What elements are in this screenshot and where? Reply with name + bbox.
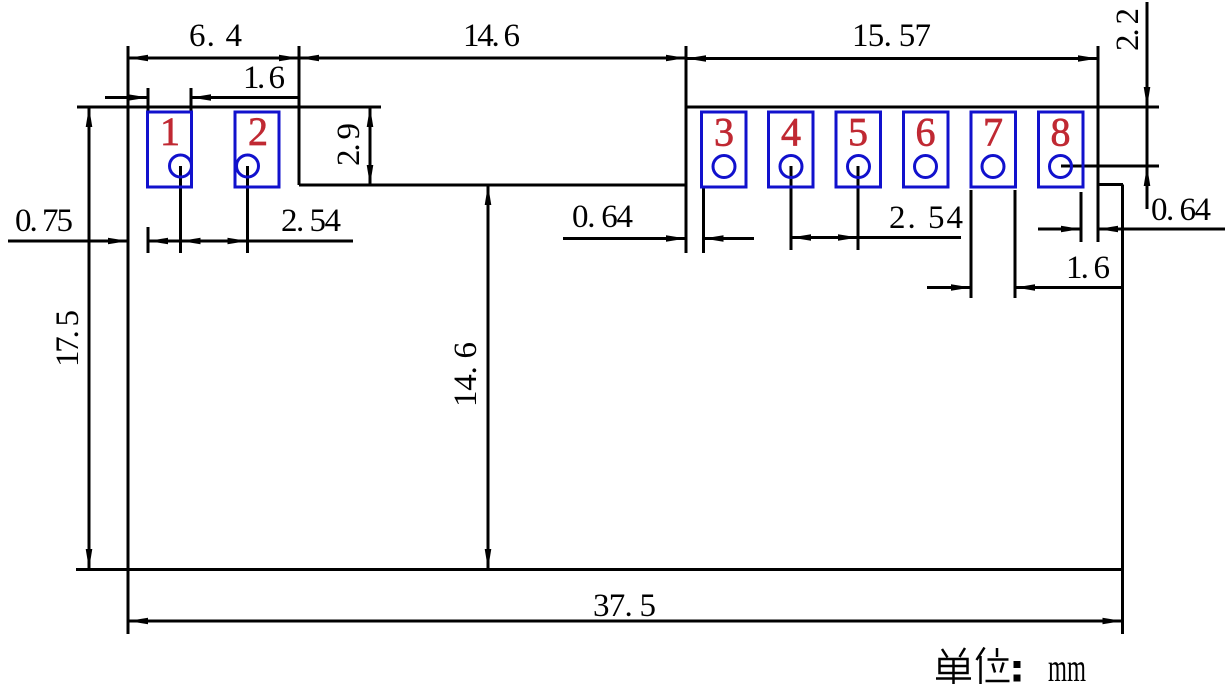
svg-text:2: 2 xyxy=(248,109,268,154)
svg-text:4: 4 xyxy=(781,110,801,155)
svg-text:2. 54: 2. 54 xyxy=(889,200,963,236)
svg-text:mm: mm xyxy=(1048,645,1086,690)
svg-text:1: 1 xyxy=(160,109,180,154)
svg-text:3: 3 xyxy=(714,110,734,155)
svg-text:0. 64: 0. 64 xyxy=(1151,192,1211,228)
svg-text:2. 2: 2. 2 xyxy=(1110,8,1146,51)
svg-text:7: 7 xyxy=(983,110,1003,155)
svg-text:6. 4: 6. 4 xyxy=(189,18,242,54)
svg-text:0. 75: 0. 75 xyxy=(15,203,73,239)
svg-text:5: 5 xyxy=(848,110,868,155)
svg-text:15. 57: 15. 57 xyxy=(852,18,931,54)
svg-text:14. 6: 14. 6 xyxy=(463,18,520,54)
svg-text:37. 5: 37. 5 xyxy=(593,588,656,624)
svg-text:14. 6: 14. 6 xyxy=(448,342,484,407)
svg-text:17. 5: 17. 5 xyxy=(50,310,86,367)
svg-text:1. 6: 1. 6 xyxy=(243,60,285,96)
svg-text:6: 6 xyxy=(916,110,936,155)
svg-text:1. 6: 1. 6 xyxy=(1066,250,1110,286)
svg-text:2. 9: 2. 9 xyxy=(331,123,367,166)
svg-text:8: 8 xyxy=(1051,110,1071,155)
svg-text:2. 54: 2. 54 xyxy=(281,203,341,239)
svg-text:0. 64: 0. 64 xyxy=(572,199,633,235)
